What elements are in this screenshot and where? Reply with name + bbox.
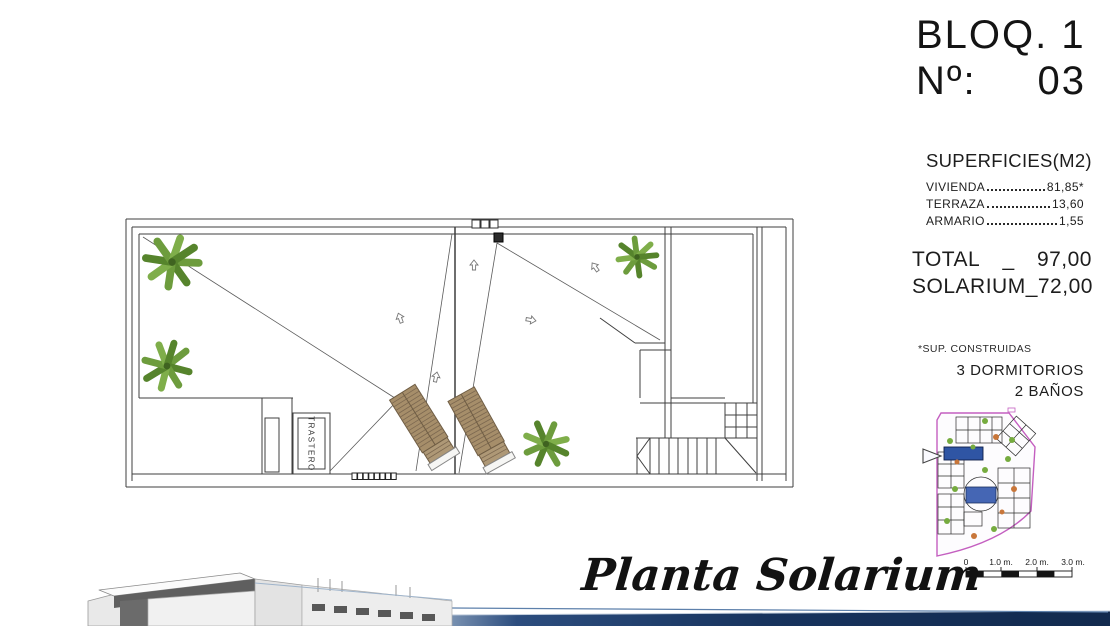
floor-plan: [126, 219, 793, 487]
surfaces-table: SUPERFICIES(M2) VIVIENDA 81,85* TERRAZA …: [926, 150, 1084, 230]
surface-row: TERRAZA 13,60: [926, 196, 1084, 213]
total-label: TOTAL: [912, 246, 980, 273]
room-label-trastero: TRASTERO: [307, 416, 316, 472]
stairs: [636, 438, 757, 474]
pool: [966, 487, 996, 503]
surface-value: 1,55: [1059, 213, 1084, 230]
scale-label-3m: 3.0 m.: [1061, 557, 1085, 567]
solarium-value: 72,00: [1038, 273, 1093, 300]
solarium-label: SOLARIUM: [912, 273, 1026, 300]
surface-value: 13,60: [1052, 196, 1084, 213]
features-block: 3 DORMITORIOS 2 BAÑOS: [920, 360, 1084, 402]
scale-label-1m: 1.0 m.: [989, 557, 1013, 567]
bathrooms-text: 2 BAÑOS: [920, 381, 1084, 402]
unit-number-label: Nº:: [916, 58, 977, 104]
slope-arrow-icons: [395, 260, 602, 383]
bedrooms-text: 3 DORMITORIOS: [920, 360, 1084, 381]
highlighted-unit: [944, 447, 983, 460]
storage-rooms: [265, 413, 330, 474]
solarium-separator: _: [1026, 273, 1038, 300]
surfaces-title: SUPERFICIES(M2): [926, 150, 1084, 172]
surface-row: ARMARIO 1,55: [926, 213, 1084, 230]
block-title: BLOQ. 1: [916, 12, 1086, 58]
scale-label-2m: 2.0 m.: [1025, 557, 1049, 567]
footnote: *SUP. CONSTRUIDAS: [918, 343, 1031, 355]
solarium-row: SOLARIUM _ 72,00: [912, 273, 1092, 300]
total-row: TOTAL _ 97,00: [912, 246, 1092, 273]
palm-trees: [135, 230, 663, 472]
sun-loungers: [388, 383, 515, 473]
grille-row: [352, 473, 396, 480]
dot-leader: [987, 189, 1045, 191]
footer-bar: [436, 608, 1110, 626]
building-photo: [88, 573, 452, 626]
drain-icon: [494, 233, 503, 242]
surface-label: ARMARIO: [926, 213, 985, 230]
surface-value: 81,85*: [1047, 179, 1084, 196]
plan-caption: Planta Solarium: [580, 550, 964, 601]
block-header: BLOQ. 1 Nº: 03: [916, 12, 1086, 104]
roof-vent: [472, 220, 498, 228]
surface-label: VIVIENDA: [926, 179, 985, 196]
surface-row: VIVIENDA 81,85*: [926, 179, 1084, 196]
unit-number: 03: [1038, 58, 1087, 104]
totals-block: TOTAL _ 97,00 SOLARIUM _ 72,00: [912, 246, 1092, 300]
dot-leader: [987, 206, 1050, 208]
surface-label: TERRAZA: [926, 196, 985, 213]
total-separator: _: [1003, 246, 1015, 273]
total-value: 97,00: [1037, 246, 1092, 273]
dot-leader: [987, 223, 1057, 225]
site-plan-minimap: [923, 408, 1036, 556]
